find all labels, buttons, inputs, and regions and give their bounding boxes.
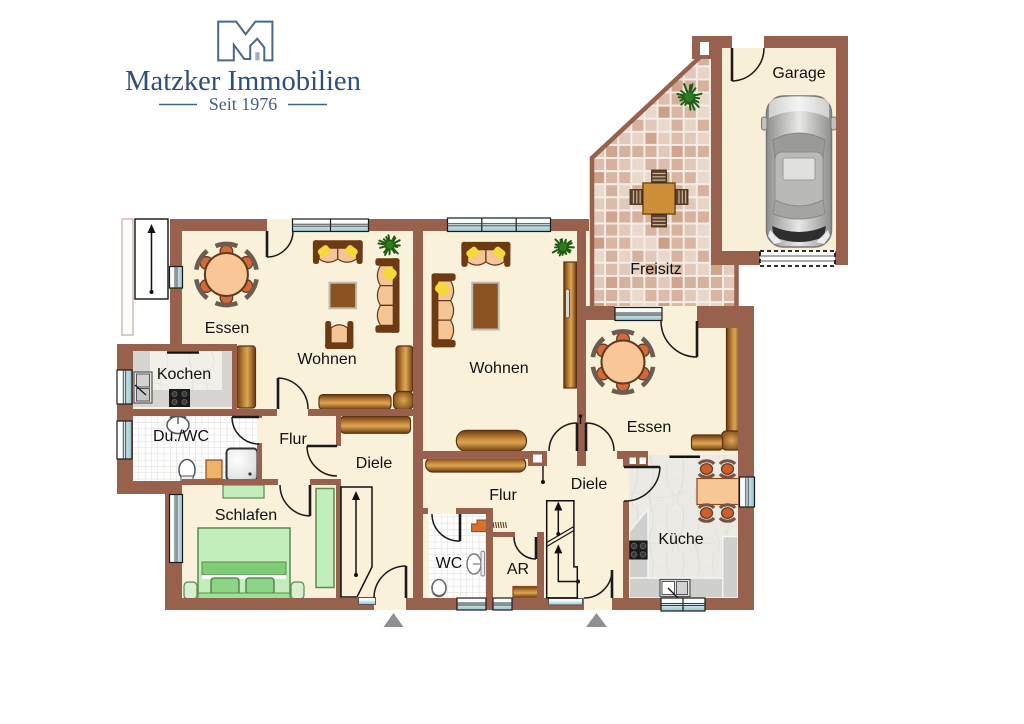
svg-text:WC: WC <box>436 555 463 572</box>
svg-text:AR: AR <box>507 561 529 578</box>
svg-text:Wohnen: Wohnen <box>469 360 528 377</box>
svg-text:Flur: Flur <box>279 431 307 448</box>
svg-text:Freisitz: Freisitz <box>630 261 682 278</box>
svg-text:Garage: Garage <box>772 65 825 82</box>
svg-text:Matzker Immobilien: Matzker Immobilien <box>125 66 361 97</box>
svg-text:Du./WC: Du./WC <box>153 428 209 445</box>
svg-text:Essen: Essen <box>627 419 671 436</box>
svg-text:Diele: Diele <box>356 455 393 472</box>
svg-text:Kochen: Kochen <box>157 366 211 383</box>
svg-text:Wohnen: Wohnen <box>297 351 356 368</box>
svg-text:Küche: Küche <box>658 531 703 548</box>
svg-text:Seit 1976: Seit 1976 <box>209 94 278 114</box>
svg-text:Essen: Essen <box>205 320 249 337</box>
svg-text:Schlafen: Schlafen <box>215 507 277 524</box>
svg-text:Flur: Flur <box>489 487 517 504</box>
svg-text:Diele: Diele <box>571 476 608 493</box>
